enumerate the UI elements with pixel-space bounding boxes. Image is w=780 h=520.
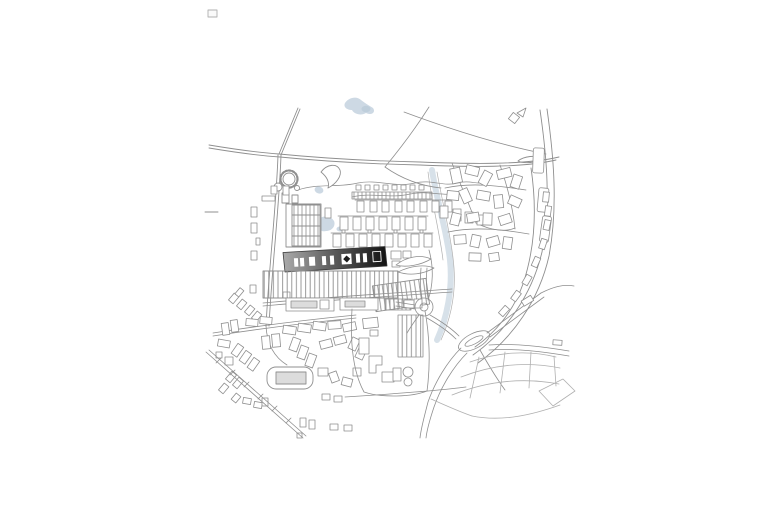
building-footprint [469,253,481,261]
building-footprint [370,330,378,336]
factory-hall-hatch [292,205,320,246]
building-footprint [405,217,413,230]
building-footprint [313,321,327,331]
building-footprint [410,185,415,190]
building-footprint [251,223,257,233]
window-slot [294,258,298,267]
building-footprint [261,336,270,350]
building-footprint [466,212,479,223]
building-footprint [283,325,297,335]
building-stub [394,230,397,233]
tank-round [404,378,412,386]
factory-hatched-block [286,204,321,247]
window-slot [363,253,368,262]
building-footprint [374,185,379,190]
building-footprint [283,186,289,195]
site-plan-page [0,0,780,520]
long-thin-hall [352,192,432,199]
building-footprint [359,234,367,247]
building-stub [342,230,345,233]
building-footprint [246,318,259,326]
building-footprint [309,420,315,429]
building-footprint [357,201,364,212]
building-footprint [395,201,402,212]
building-footprint [250,285,256,293]
building-footprint [476,190,490,201]
building-footprint [256,238,260,245]
building-footprint [370,201,377,212]
row-buildings-south [286,298,422,311]
window-slot [330,256,335,265]
stadium-field [276,372,306,384]
building-footprint [251,251,257,260]
tank-round [403,367,413,377]
building-footprint [292,195,298,203]
building-footprint [300,418,306,427]
building-footprint [372,234,380,247]
building-footprint [333,234,341,247]
building-footprint [447,190,460,200]
building-stub [368,230,371,233]
building-footprint [440,206,448,218]
building-footprint [366,217,374,230]
building-footprint [356,185,361,190]
building-footprint [420,201,427,212]
building-footprint [379,217,387,230]
building-footprint [403,251,411,258]
building-footprint [385,234,393,247]
building-footprint [363,317,379,329]
building-footprint [344,425,352,431]
window-slot [356,254,361,263]
building-inner [291,301,317,308]
bridge-deck [553,340,562,346]
building-footprint [318,368,328,376]
building-footprint [365,185,370,190]
building-footprint [382,372,394,382]
building-footprint [392,185,397,190]
building-footprint [346,234,354,247]
building-footprint [533,148,545,173]
building-stub [420,230,423,233]
building-footprint [483,213,492,225]
building-footprint [254,401,263,408]
striped-hall [398,315,423,357]
building-footprint [243,397,252,404]
building-footprint [353,217,361,230]
building-footprint [217,339,230,348]
building-footprint [298,323,312,333]
building-footprint [325,208,331,218]
building-footprint [260,316,273,324]
building-footprint [401,185,406,190]
window-slot [322,256,327,265]
building-footprint [382,201,389,212]
building-footprint [502,237,513,250]
building-footprint [230,320,239,333]
building-footprint [271,186,277,194]
building-footprint [271,334,280,348]
building-footprint [424,234,432,247]
building-footprint [322,394,330,400]
building-footprint [393,368,401,381]
building-footprint [411,234,419,247]
building-footprint [398,234,406,247]
building-inner [345,301,365,307]
small-halls-west [325,208,331,218]
pond-north-shade [362,106,371,112]
building-footprint [334,396,342,402]
window-slot [300,258,304,267]
building-footprint [225,357,233,365]
building-footprint [262,196,275,201]
building-footprint [330,424,338,430]
building-footprint [488,252,499,261]
building-footprint [392,217,400,230]
faint-mark-northwest [208,10,217,17]
building-footprint [383,185,388,190]
building-footprint [320,300,329,309]
site-plan-canvas [0,0,780,520]
building-footprint [340,217,348,230]
building-footprint [419,185,424,190]
building-footprint [328,321,342,330]
building-footprint [359,338,369,354]
gasometer-body [283,173,295,185]
building-footprint [418,217,426,230]
building-footprint [251,207,257,217]
window-slot [309,257,316,266]
building-footprint [544,206,551,217]
building-footprint [470,234,481,248]
building-footprint [391,251,401,259]
building-footprint [543,192,550,202]
building-footprint [493,195,503,209]
building-footprint [221,323,230,336]
stadium-building [267,367,313,389]
building-footprint [407,201,414,212]
page-background [0,0,780,520]
building-footprint [454,235,467,245]
building-footprint [432,201,439,212]
tank-tiny [295,186,300,191]
